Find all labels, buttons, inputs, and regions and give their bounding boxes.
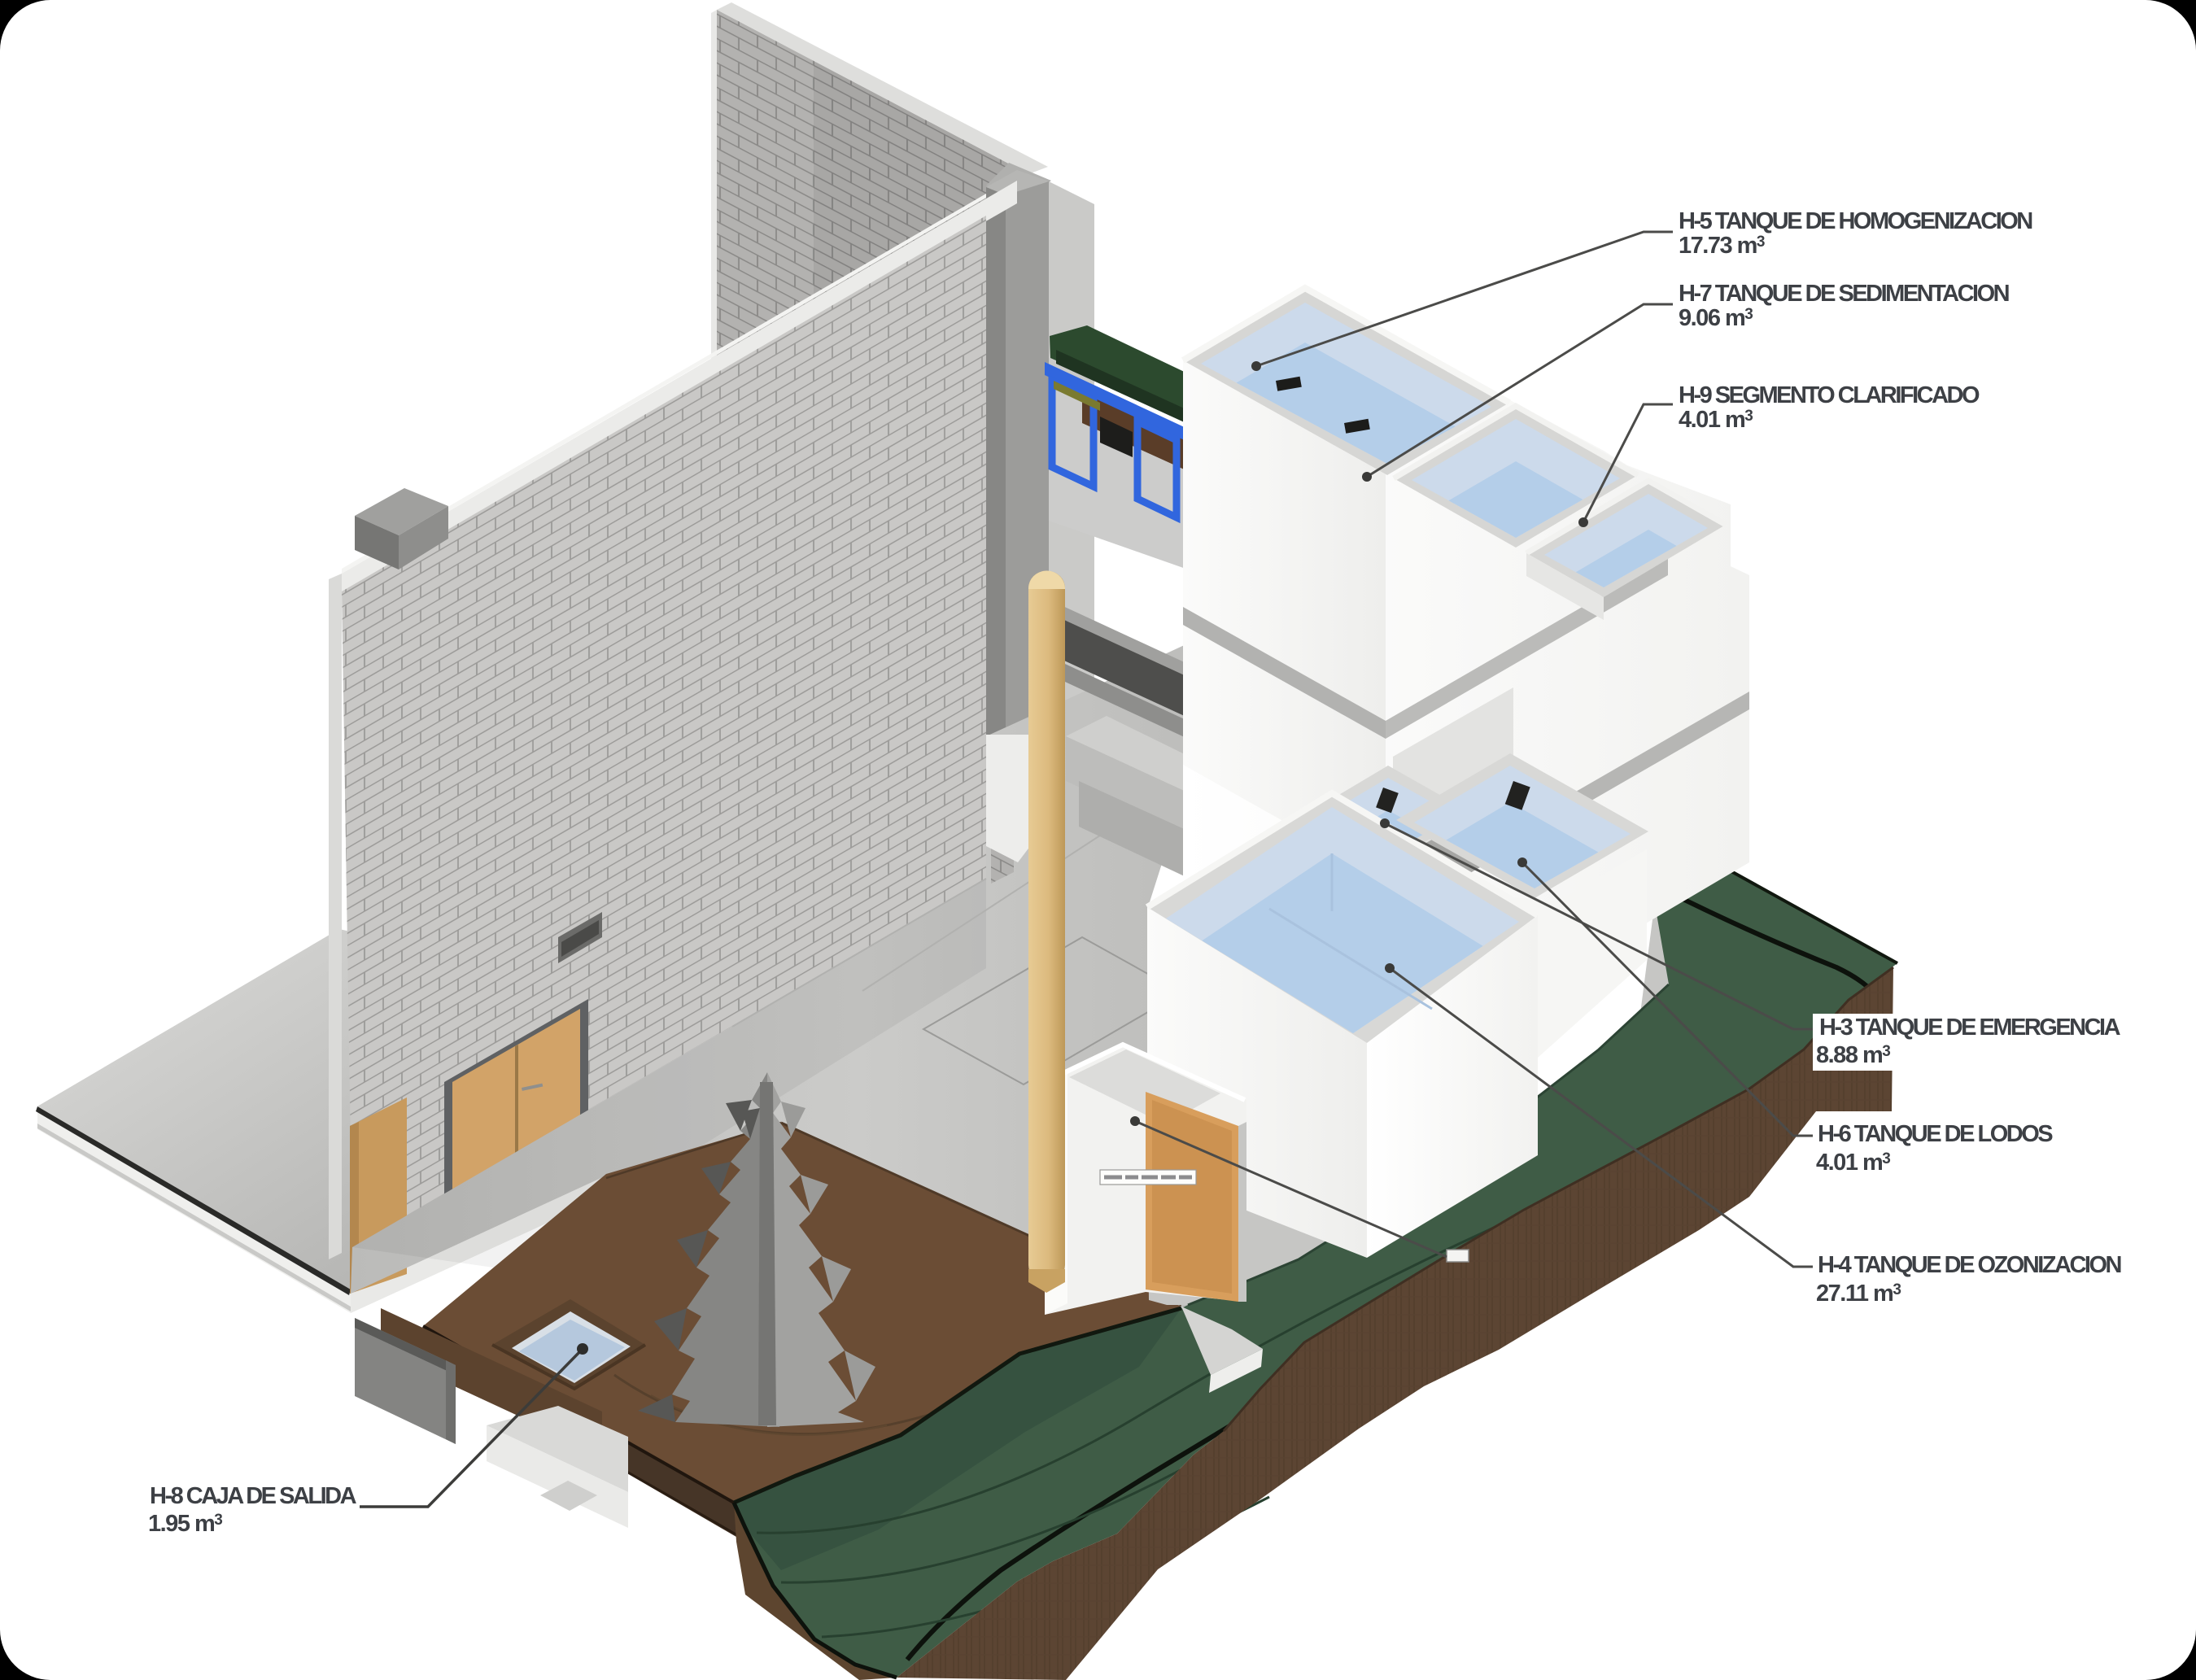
svg-text:4.01 m3: 4.01 m3 (1816, 1150, 1890, 1176)
svg-text:H-8 CAJA DE SALIDA: H-8 CAJA DE SALIDA (150, 1483, 357, 1509)
svg-text:H-3 TANQUE DE EMERGENCIA: H-3 TANQUE DE EMERGENCIA (1819, 1015, 2121, 1041)
svg-text:17.73 m3: 17.73 m3 (1679, 233, 1765, 259)
svg-text:8.88 m3: 8.88 m3 (1816, 1042, 1890, 1068)
svg-text:1.95 m3: 1.95 m3 (148, 1511, 222, 1537)
svg-text:H-9 SEGMENTO CLARIFICADO: H-9 SEGMENTO CLARIFICADO (1679, 382, 1980, 408)
svg-text:H-7 TANQUE DE SEDIMENTACION: H-7 TANQUE DE SEDIMENTACION (1679, 281, 2009, 307)
svg-text:H-5 TANQUE DE HOMOGENIZACION: H-5 TANQUE DE HOMOGENIZACION (1679, 208, 2032, 234)
svg-text:27.11 m3: 27.11 m3 (1816, 1281, 1901, 1307)
svg-text:9.06 m3: 9.06 m3 (1679, 305, 1753, 331)
svg-text:H-4 TANQUE DE OZONIZACION: H-4 TANQUE DE OZONIZACION (1818, 1252, 2121, 1278)
svg-text:4.01 m3: 4.01 m3 (1679, 407, 1753, 433)
svg-text:H-6 TANQUE DE LODOS: H-6 TANQUE DE LODOS (1818, 1121, 2053, 1147)
